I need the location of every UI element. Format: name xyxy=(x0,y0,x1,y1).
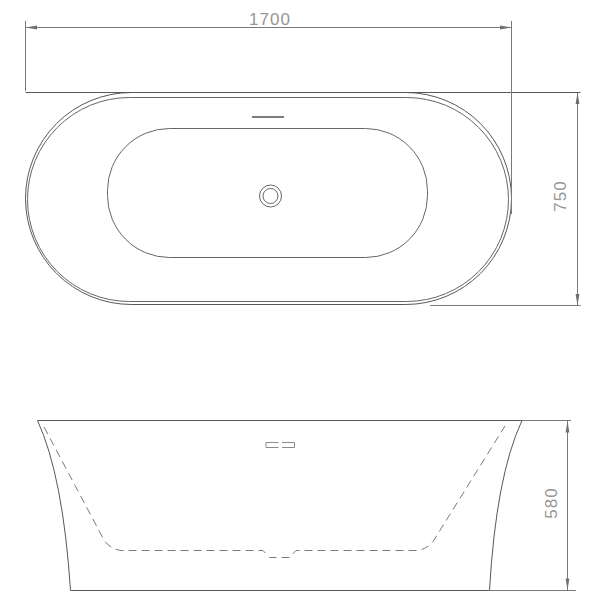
dim-width: 750 xyxy=(430,93,581,306)
front-right-profile xyxy=(490,421,523,591)
tub-outer-rim xyxy=(26,93,512,305)
hidden-basin-outline xyxy=(44,426,505,558)
basin-outline xyxy=(108,129,428,258)
dim-arrow-up-icon xyxy=(566,421,570,433)
dim-length: 1700 xyxy=(26,10,512,214)
drain-icon xyxy=(260,185,282,207)
dim-arrow-up-icon xyxy=(576,93,580,105)
front-overflow-slots xyxy=(266,443,295,448)
overflow-slot-left xyxy=(266,443,279,448)
front-left-profile xyxy=(38,421,71,591)
top-view: 1700 750 xyxy=(26,10,581,306)
dim-height: 580 xyxy=(542,421,569,590)
front-view: 580 xyxy=(38,421,577,591)
dim-arrow-down-icon xyxy=(576,294,580,306)
dim-height-label: 580 xyxy=(542,487,561,518)
dim-arrow-down-icon xyxy=(566,579,570,591)
technical-drawing: 1700 750 xyxy=(0,0,600,600)
dim-arrow-right-icon xyxy=(500,26,512,30)
dim-arrow-left-icon xyxy=(26,26,38,30)
overflow-slot-right xyxy=(282,443,295,448)
dim-width-label: 750 xyxy=(551,180,570,211)
drawing-canvas: 1700 750 xyxy=(0,0,600,600)
drain-circle-inner xyxy=(263,189,278,204)
dim-length-label: 1700 xyxy=(249,10,291,29)
